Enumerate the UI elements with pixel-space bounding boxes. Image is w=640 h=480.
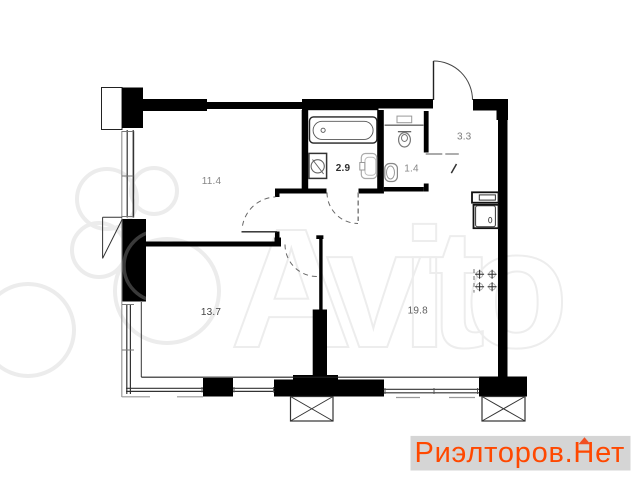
svg-text:Риэлторов.Нет: Риэлторов.Нет bbox=[415, 437, 626, 469]
svg-text:19.8: 19.8 bbox=[408, 306, 429, 317]
svg-text:Avito: Avito bbox=[230, 194, 563, 384]
svg-text:3.3: 3.3 bbox=[457, 131, 472, 142]
svg-text:2.9: 2.9 bbox=[336, 163, 351, 174]
svg-text:13.7: 13.7 bbox=[201, 307, 222, 318]
svg-text:1.4: 1.4 bbox=[404, 164, 419, 175]
svg-text:11.4: 11.4 bbox=[202, 176, 222, 187]
